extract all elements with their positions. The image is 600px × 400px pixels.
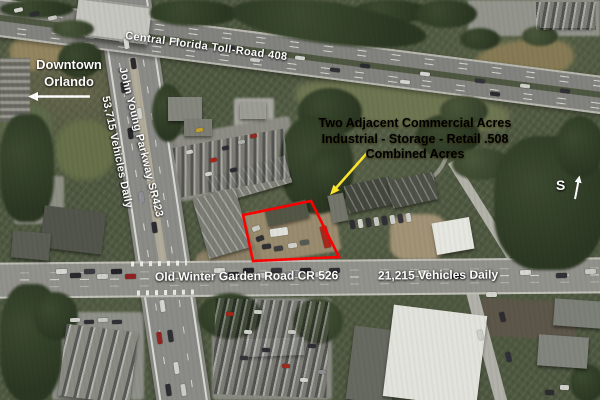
- compass-label: S: [556, 177, 565, 193]
- road-traffic-label: 21,215 Vehicles Daily: [378, 267, 498, 282]
- road-label: Old Winter Garden Road CR 526: [155, 268, 338, 284]
- compass-arrow-line: [575, 181, 579, 199]
- downtown-label: Downtown Orlando: [20, 56, 118, 90]
- west-arrow-icon: [28, 92, 38, 101]
- compass-arrow-icon: [575, 176, 582, 184]
- aerial-photo: Central Florida Toll-Road 408 Downtown O…: [0, 0, 600, 400]
- property-note: Two Adjacent Commercial Acres Industrial…: [292, 116, 538, 163]
- property-note-line3: Combined Acres: [292, 147, 538, 163]
- property-note-line1: Two Adjacent Commercial Acres: [292, 116, 538, 132]
- property-outline: [243, 201, 339, 261]
- property-note-line2: Industrial - Storage - Retail .508: [292, 132, 538, 148]
